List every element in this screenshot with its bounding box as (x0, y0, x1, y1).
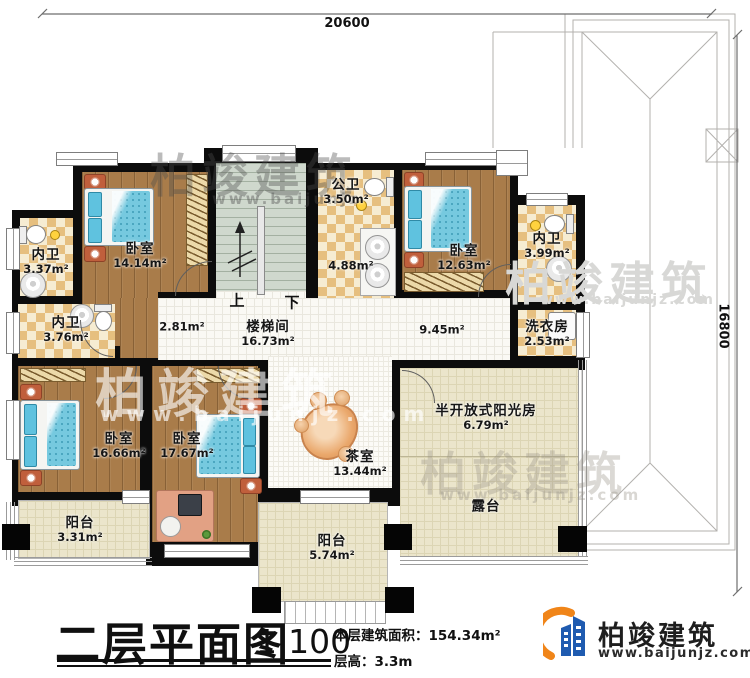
room-label-bath-public: 公卫3.50m² (323, 178, 368, 206)
window (6, 228, 20, 270)
dimension-top: 20600 (324, 16, 369, 31)
column (384, 524, 412, 550)
toilet-icon (386, 177, 394, 197)
room-label-bath-399: 内卫3.99m² (524, 232, 569, 260)
window (576, 312, 590, 358)
room-label-bedroom-1767: 卧室17.67m² (160, 432, 213, 460)
floor-plan: 柏竣建筑 www.baijunjz 柏竣建筑 www.baijunjz.com … (0, 0, 750, 678)
room-label-bedroom-1263: 卧室12.63m² (437, 244, 490, 272)
room-label-balcony-331: 阳台3.31m² (57, 516, 102, 544)
company-logo-url: www.baijunjz.com (598, 646, 750, 661)
wardrobe (20, 368, 86, 382)
room-label-tea: 茶室13.44m² (333, 450, 386, 478)
room-label-terrace: 露台 (472, 499, 501, 514)
bed (20, 400, 80, 470)
room-label-bedroom-1414: 卧室14.14m² (113, 242, 166, 270)
computer-monitor-icon (178, 494, 202, 516)
room-label-stairwell: 楼梯间16.73m² (241, 320, 294, 348)
stair-direction-arrow (226, 215, 262, 285)
window (6, 312, 20, 354)
room-label-hall-281: 2.81m² (159, 321, 204, 334)
stair-up-label: 上 (229, 290, 244, 311)
window (122, 490, 150, 504)
toilet-icon (566, 214, 574, 234)
room-label-balcony-574: 阳台5.74m² (309, 534, 354, 562)
room-label-bedroom-1666: 卧室16.66m² (92, 432, 145, 460)
room-label-vanity-area: 4.88m² (328, 260, 373, 273)
window (496, 150, 528, 176)
floor-area-info: 本层建筑面积：154.34m² (334, 624, 501, 644)
nightstand (20, 470, 42, 486)
chair (160, 516, 181, 537)
window (300, 490, 370, 504)
room-label-sunroom: 半开放式阳光房6.79m² (435, 404, 537, 432)
dimension-right: 16800 (716, 303, 731, 348)
company-logo-icon (543, 606, 593, 662)
window (56, 152, 118, 166)
nightstand (84, 246, 106, 262)
nightstand (404, 252, 424, 268)
sink-icon (365, 235, 390, 260)
page-title: 二层平面图 (55, 608, 290, 673)
window (6, 400, 20, 460)
room-label-laundry: 洗衣房2.53m² (524, 320, 569, 348)
nightstand (20, 384, 42, 400)
room-label-bath-376: 内卫3.76m² (43, 316, 88, 344)
column (2, 524, 30, 550)
nightstand (240, 398, 262, 414)
railing (400, 556, 588, 568)
room-label-bath-337: 内卫3.37m² (23, 248, 68, 276)
bed (84, 188, 154, 246)
nightstand (240, 478, 262, 494)
column (558, 526, 587, 552)
floor-height-info: 层高：3.3m (334, 650, 412, 670)
window (222, 145, 296, 162)
window (526, 193, 568, 206)
stair-down-label: 下 (284, 292, 299, 313)
window (425, 152, 505, 166)
wardrobe (404, 272, 484, 292)
column (385, 587, 414, 613)
room-label-hall-945: 9.45m² (419, 324, 464, 337)
window (164, 544, 250, 558)
railing (14, 557, 152, 567)
plant-icon (202, 530, 211, 539)
wardrobe (186, 174, 208, 266)
entry-steps (284, 601, 386, 624)
